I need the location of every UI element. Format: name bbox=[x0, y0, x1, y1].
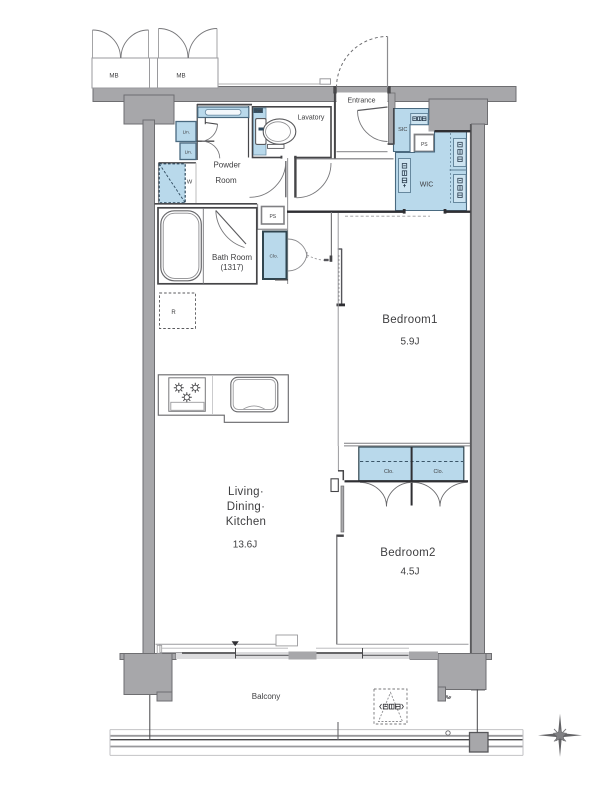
svg-text:W: W bbox=[187, 180, 193, 186]
svg-text:MB: MB bbox=[109, 73, 118, 80]
svg-text:Shelf: Shelf bbox=[254, 109, 262, 113]
svg-text:MB: MB bbox=[176, 73, 185, 80]
svg-text:Balcony: Balcony bbox=[252, 692, 280, 701]
svg-text:Lin.: Lin. bbox=[185, 150, 192, 155]
svg-text:PS: PS bbox=[421, 142, 428, 148]
svg-text:Dining·: Dining· bbox=[227, 501, 266, 513]
svg-text:13.6J: 13.6J bbox=[233, 540, 257, 551]
svg-text:Clo.: Clo. bbox=[434, 469, 444, 475]
svg-text:Living·: Living· bbox=[228, 486, 264, 498]
svg-text:Room: Room bbox=[215, 176, 237, 185]
svg-text:Lin.: Lin. bbox=[183, 130, 190, 135]
svg-text:Bedroom1: Bedroom1 bbox=[382, 314, 437, 326]
svg-text:Bedroom2: Bedroom2 bbox=[380, 547, 435, 559]
svg-text:Clo.: Clo. bbox=[384, 469, 394, 475]
svg-text:Lavatory: Lavatory bbox=[298, 115, 325, 122]
svg-text:4.5J: 4.5J bbox=[401, 567, 420, 578]
svg-text:PS: PS bbox=[269, 214, 276, 220]
svg-text:WIC: WIC bbox=[420, 182, 434, 189]
svg-text:Entrance: Entrance bbox=[347, 98, 375, 105]
svg-text:R: R bbox=[171, 310, 176, 316]
svg-text:(1317): (1317) bbox=[220, 263, 243, 272]
svg-text:Powder: Powder bbox=[213, 161, 240, 170]
svg-text:Bath Room: Bath Room bbox=[212, 253, 252, 262]
svg-text:5.9J: 5.9J bbox=[401, 337, 420, 348]
svg-text:Clo.: Clo. bbox=[270, 254, 279, 260]
svg-text:Kitchen: Kitchen bbox=[226, 516, 266, 528]
svg-text:SIC: SIC bbox=[398, 127, 407, 133]
